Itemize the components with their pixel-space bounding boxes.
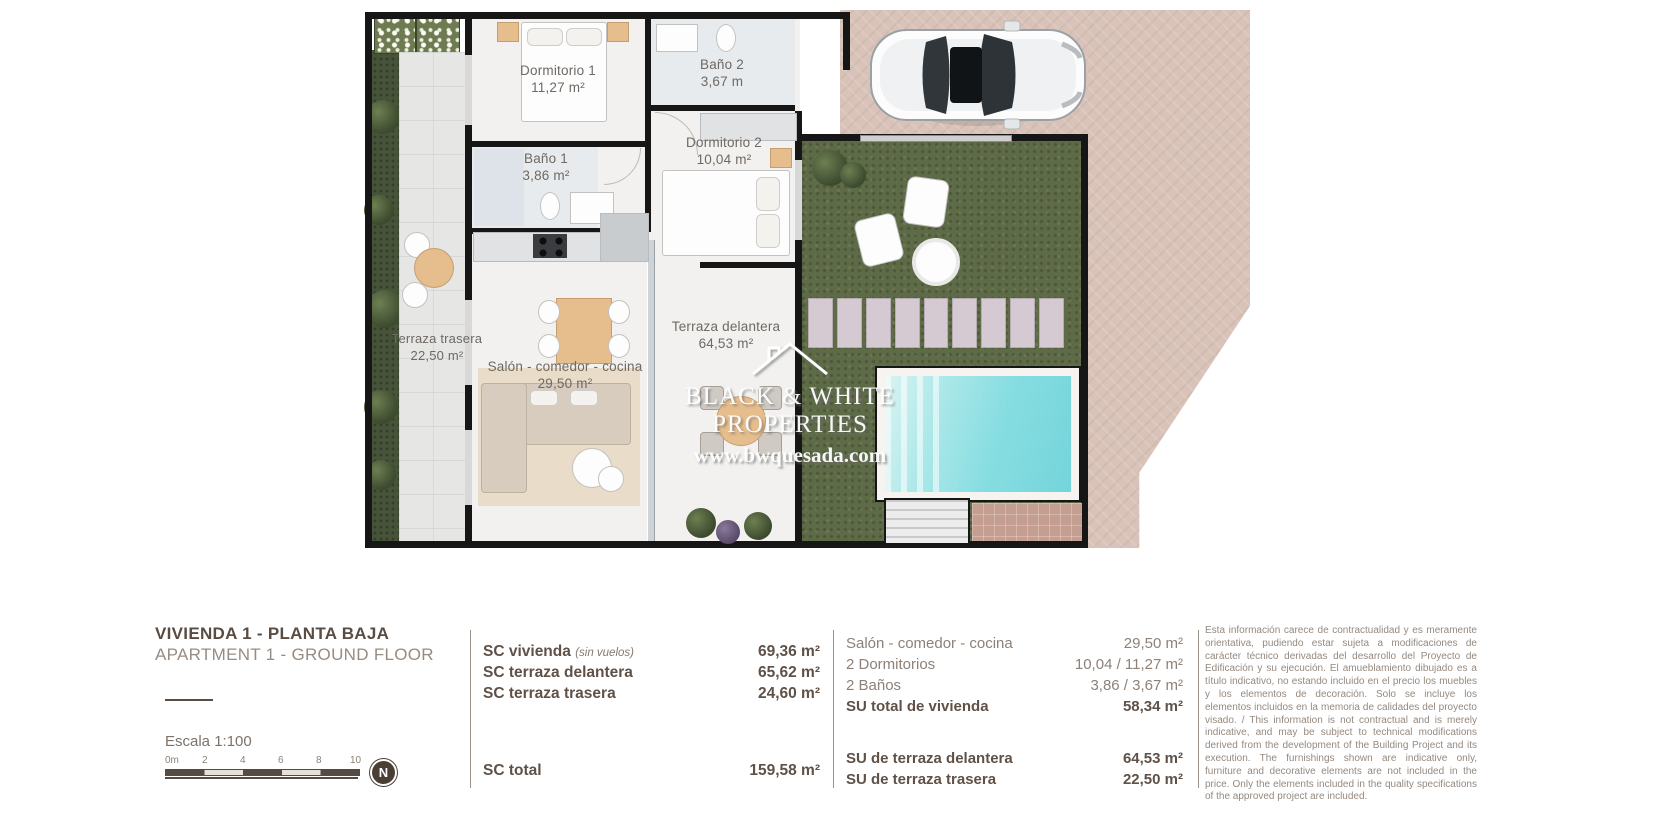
garden-stairs bbox=[884, 498, 970, 543]
wall-top bbox=[365, 12, 850, 19]
sc-label-text: SC vivienda bbox=[483, 643, 571, 660]
scale-bar bbox=[165, 769, 360, 776]
pillow bbox=[566, 28, 602, 46]
room-area: 10,04 m² bbox=[650, 151, 798, 168]
plant bbox=[744, 512, 772, 540]
toilet-bath2 bbox=[716, 24, 736, 52]
tick: 8 bbox=[316, 755, 322, 766]
chair bbox=[538, 300, 560, 324]
room-area: 3,67 m bbox=[662, 73, 782, 90]
su-value: 58,34 m² bbox=[1123, 698, 1183, 715]
tick: 6 bbox=[278, 755, 284, 766]
garden-table bbox=[912, 238, 960, 286]
room-name: Baño 1 bbox=[486, 150, 606, 167]
wall-int-v1 bbox=[645, 19, 651, 232]
sc-row-vivienda: SC vivienda (sin vuelos) 69,36 m² bbox=[483, 643, 820, 661]
room-label-salon: Salón - comedor - cocina 29,50 m² bbox=[475, 358, 655, 392]
su-value: 29,50 m² bbox=[1124, 635, 1183, 652]
plan-title-es: VIVIENDA 1 - PLANTA BAJA bbox=[155, 624, 389, 644]
floor-plan: Dormitorio 1 11,27 m² Baño 2 3,67 m Dorm… bbox=[0, 0, 1668, 560]
toilet-bath1 bbox=[540, 192, 560, 220]
room-name: Dormitorio 2 bbox=[650, 134, 798, 151]
su-row-dormitorios: 2 Dormitorios 10,04 / 11,27 m² bbox=[846, 656, 1183, 673]
nightstand bbox=[607, 22, 629, 42]
plan-title-en: APARTMENT 1 - GROUND FLOOR bbox=[155, 645, 434, 665]
lounge-chair bbox=[902, 175, 950, 228]
stone bbox=[924, 298, 949, 348]
sc-value: 159,58 m² bbox=[749, 762, 820, 780]
wall-pillar bbox=[843, 12, 850, 70]
sc-label: SC terraza trasera bbox=[483, 685, 616, 703]
wall-dorm2-bottom bbox=[700, 262, 802, 268]
su-value: 3,86 / 3,67 m² bbox=[1090, 677, 1183, 694]
room-label-bano2: Baño 2 3,67 m bbox=[662, 56, 782, 90]
su-label: 2 Dormitorios bbox=[846, 656, 935, 673]
nightstand bbox=[497, 22, 519, 42]
room-label-dormitorio2: Dormitorio 2 10,04 m² bbox=[650, 134, 798, 168]
room-name: Terraza delantera bbox=[654, 318, 798, 335]
room-name: Baño 2 bbox=[662, 56, 782, 73]
scale-bar-ticks: 0m 2 4 6 8 10 bbox=[165, 755, 365, 767]
coffee-table-small bbox=[598, 466, 624, 492]
scale-label: Escala 1:100 bbox=[165, 733, 252, 750]
sc-value: 24,60 m² bbox=[758, 685, 820, 703]
pillow bbox=[527, 28, 563, 46]
flower-planter bbox=[416, 14, 460, 54]
su-label: SU total de vivienda bbox=[846, 698, 989, 715]
chair bbox=[608, 334, 630, 358]
wall-int-h2 bbox=[651, 105, 795, 111]
divider-rule bbox=[165, 699, 213, 701]
roof-logo-icon bbox=[747, 336, 833, 378]
window-right-1 bbox=[795, 160, 802, 240]
su-row-terraza-delantera: SU de terraza delantera 64,53 m² bbox=[846, 750, 1183, 767]
disclaimer-es: Esta información carece de contractualid… bbox=[1205, 625, 1477, 726]
terrace-table bbox=[414, 248, 454, 288]
room-area: 3,86 m² bbox=[486, 167, 606, 184]
su-label: Salón - comedor - cocina bbox=[846, 635, 1013, 652]
room-name: Dormitorio 1 bbox=[488, 62, 628, 79]
su-label: SU de terraza trasera bbox=[846, 771, 996, 788]
pillow bbox=[756, 214, 780, 248]
stone bbox=[1010, 298, 1035, 348]
sc-value: 69,36 m² bbox=[758, 643, 820, 661]
room-label-dormitorio1: Dormitorio 1 11,27 m² bbox=[488, 62, 628, 96]
kitchen-cabinet bbox=[600, 213, 649, 262]
column-divider bbox=[833, 630, 834, 788]
wall-right bbox=[1081, 134, 1088, 548]
sc-row-terraza-trasera: SC terraza trasera 24,60 m² bbox=[483, 685, 820, 703]
sc-label: SC total bbox=[483, 762, 542, 780]
su-value: 22,50 m² bbox=[1123, 771, 1183, 788]
su-row-banos: 2 Baños 3,86 / 3,67 m² bbox=[846, 677, 1183, 694]
north-compass-icon: N bbox=[370, 759, 397, 786]
compass-letter: N bbox=[379, 765, 388, 780]
su-label: SU de terraza delantera bbox=[846, 750, 1013, 767]
tick: 0m bbox=[165, 755, 179, 766]
tick: 4 bbox=[240, 755, 246, 766]
watermark-line1: BLACK & WHITE bbox=[655, 383, 925, 411]
room-area: 29,50 m² bbox=[475, 375, 655, 392]
su-label: 2 Baños bbox=[846, 677, 901, 694]
olive-plant bbox=[840, 162, 866, 188]
wall-left bbox=[365, 12, 372, 548]
plant bbox=[686, 508, 716, 538]
plant bbox=[716, 520, 740, 544]
dining-table bbox=[556, 298, 612, 364]
room-name: Terraza trasera bbox=[378, 330, 496, 347]
sc-value: 65,62 m² bbox=[758, 664, 820, 682]
flower-planter bbox=[374, 14, 416, 54]
pillow bbox=[756, 177, 780, 211]
sc-label: SC terraza delantera bbox=[483, 664, 633, 682]
chair bbox=[538, 334, 560, 358]
su-value: 64,53 m² bbox=[1123, 750, 1183, 767]
disclaimer-en: This information is not contractual and … bbox=[1205, 715, 1477, 803]
sc-label: SC vivienda (sin vuelos) bbox=[483, 643, 634, 661]
window-left-3 bbox=[465, 430, 472, 505]
tick: 2 bbox=[202, 755, 208, 766]
footer: VIVIENDA 1 - PLANTA BAJA APARTMENT 1 - G… bbox=[0, 585, 1668, 820]
column-divider bbox=[1198, 630, 1199, 788]
sink-bath2 bbox=[656, 24, 698, 52]
cushion bbox=[570, 390, 598, 406]
su-row-total-vivienda: SU total de vivienda 58,34 m² bbox=[846, 698, 1183, 715]
room-name: Salón - comedor - cocina bbox=[475, 358, 655, 375]
garden-gate bbox=[860, 135, 1012, 142]
sofa-chaise bbox=[481, 383, 527, 493]
tick: 10 bbox=[350, 755, 361, 766]
agency-watermark: BLACK & WHITE PROPERTIES www.bwquesada.c… bbox=[655, 336, 925, 468]
room-area: 11,27 m² bbox=[488, 79, 628, 96]
chair bbox=[608, 300, 630, 324]
scale-bar-baseline bbox=[165, 777, 358, 779]
su-value: 10,04 / 11,27 m² bbox=[1075, 656, 1183, 673]
stone bbox=[981, 298, 1006, 348]
stone bbox=[1039, 298, 1064, 348]
stone bbox=[952, 298, 977, 348]
watermark-line2: PROPERTIES bbox=[655, 411, 925, 439]
watermark-url: www.bwquesada.com bbox=[655, 443, 925, 468]
legal-disclaimer: Esta información carece de contractualid… bbox=[1205, 625, 1477, 804]
su-row-salon: Salón - comedor - cocina 29,50 m² bbox=[846, 635, 1183, 652]
sc-note: (sin vuelos) bbox=[575, 647, 634, 659]
sc-row-terraza-delantera: SC terraza delantera 65,62 m² bbox=[483, 664, 820, 682]
stove-hob bbox=[533, 234, 567, 258]
column-divider bbox=[470, 630, 471, 788]
sc-row-total: SC total 159,58 m² bbox=[483, 762, 820, 780]
window-left-1 bbox=[465, 55, 472, 125]
room-label-bano1: Baño 1 3,86 m² bbox=[486, 150, 606, 184]
cushion bbox=[530, 390, 558, 406]
car-top-view bbox=[866, 20, 1091, 130]
su-row-terraza-trasera: SU de terraza trasera 22,50 m² bbox=[846, 771, 1183, 788]
small-patio bbox=[972, 503, 1082, 541]
wall-int-h1 bbox=[465, 141, 651, 147]
